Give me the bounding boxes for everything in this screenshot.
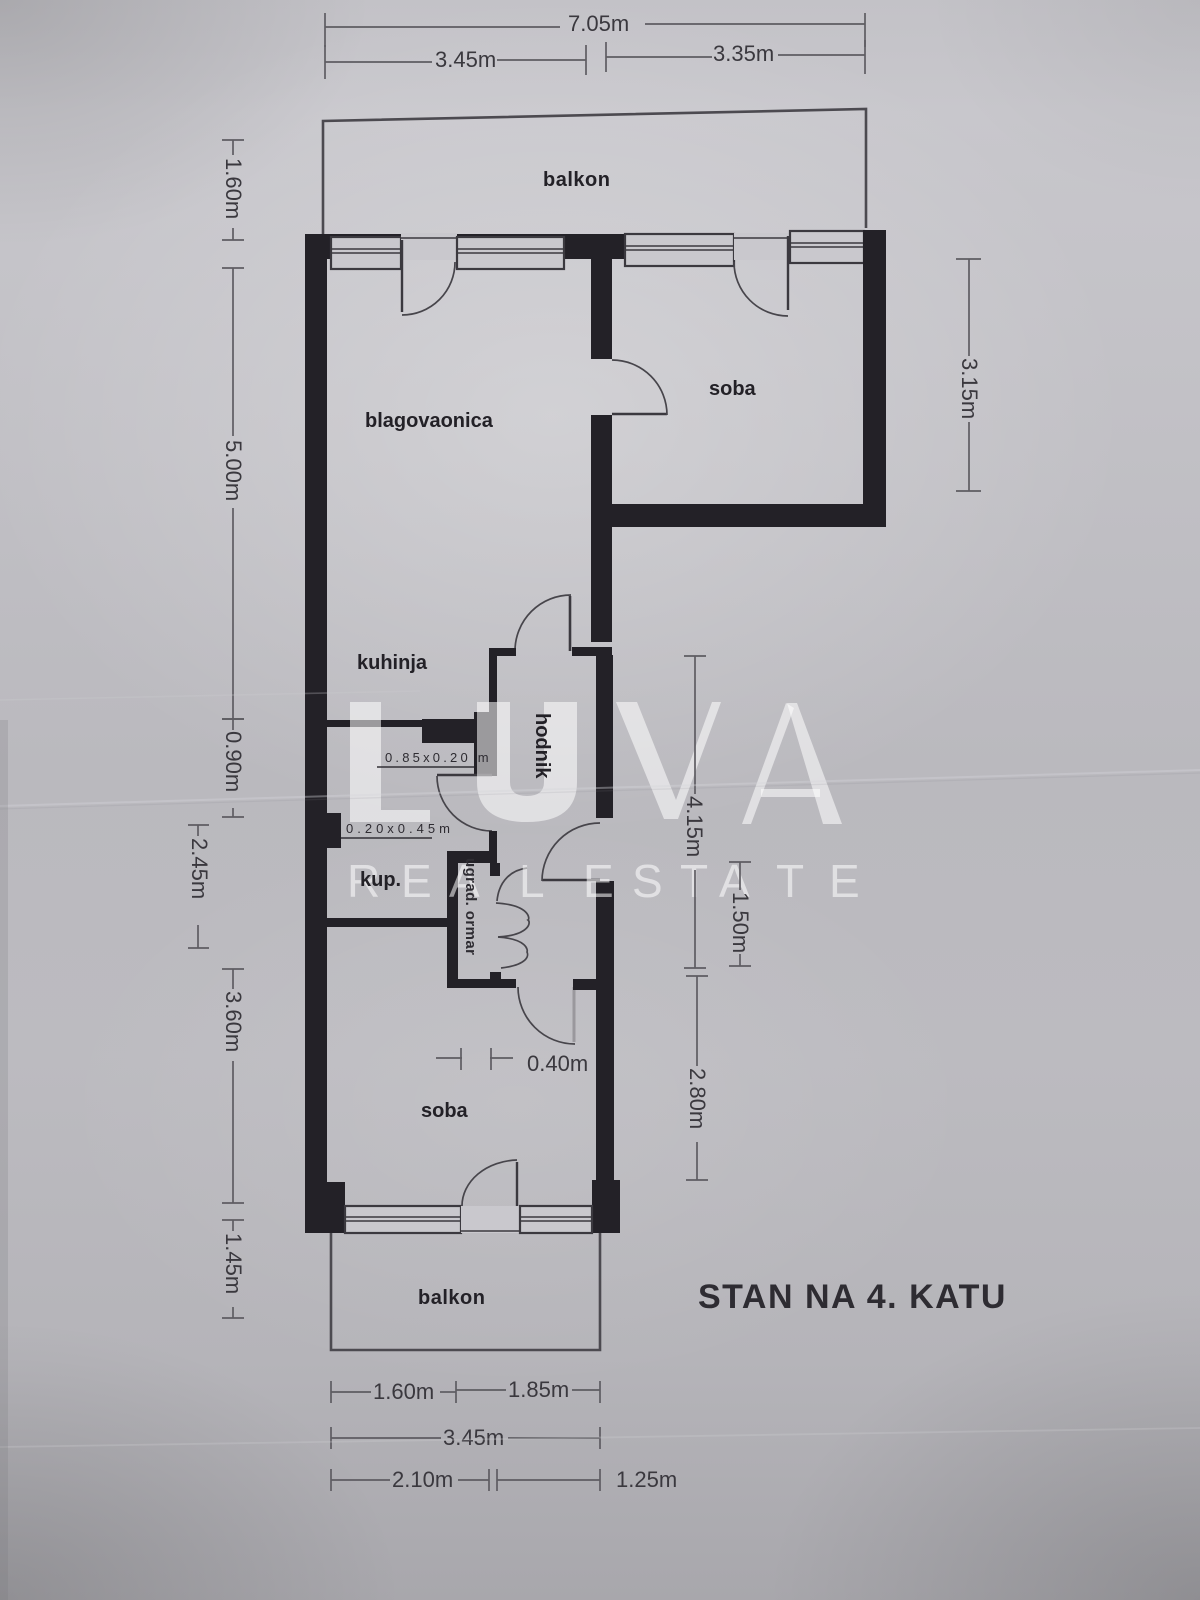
svg-text:3.45m: 3.45m [443, 1425, 504, 1450]
svg-text:1.60m: 1.60m [221, 158, 246, 219]
svg-text:STAN NA 4. KATU: STAN NA 4. KATU [698, 1278, 1007, 1316]
svg-text:1.25m: 1.25m [616, 1467, 677, 1492]
svg-text:T: T [776, 855, 804, 907]
svg-text:E: E [829, 855, 860, 907]
svg-text:kup.: kup. [360, 869, 401, 891]
svg-text:3.15m: 3.15m [957, 358, 982, 419]
svg-text:1.60m: 1.60m [373, 1379, 434, 1404]
svg-text:7.05m: 7.05m [568, 11, 629, 36]
svg-text:1.45m: 1.45m [221, 1233, 246, 1294]
svg-text:0.20x0.45m: 0.20x0.45m [346, 821, 454, 836]
svg-text:0.85x0.20 m: 0.85x0.20 m [385, 750, 492, 765]
svg-text:ugrad. ormar: ugrad. ormar [462, 858, 479, 955]
svg-text:1.50m: 1.50m [728, 892, 753, 953]
svg-text:3.60m: 3.60m [221, 991, 246, 1052]
svg-text:5.00m: 5.00m [221, 440, 246, 501]
svg-text:soba: soba [421, 1100, 469, 1122]
svg-text:E: E [401, 855, 432, 907]
svg-text:soba: soba [709, 378, 757, 400]
svg-text:0.90m: 0.90m [221, 731, 246, 792]
svg-text:S: S [632, 855, 663, 907]
svg-text:2.10m: 2.10m [392, 1467, 453, 1492]
svg-text:balkon: balkon [418, 1287, 485, 1309]
svg-text:3.35m: 3.35m [713, 41, 774, 66]
svg-text:L: L [519, 855, 545, 907]
svg-text:2.45m: 2.45m [187, 838, 212, 899]
svg-text:T: T [680, 855, 708, 907]
svg-text:blagovaonica: blagovaonica [365, 410, 494, 432]
svg-text:1.85m: 1.85m [508, 1377, 569, 1402]
svg-text:kuhinja: kuhinja [357, 652, 428, 674]
svg-text:balkon: balkon [543, 169, 610, 191]
svg-text:hodnik: hodnik [531, 713, 553, 779]
svg-text:E: E [583, 855, 614, 907]
svg-text:0.40m: 0.40m [527, 1051, 588, 1076]
svg-text:3.45m: 3.45m [435, 47, 496, 72]
svg-text:2.80m: 2.80m [685, 1068, 710, 1129]
svg-text:4.15m: 4.15m [682, 796, 707, 857]
